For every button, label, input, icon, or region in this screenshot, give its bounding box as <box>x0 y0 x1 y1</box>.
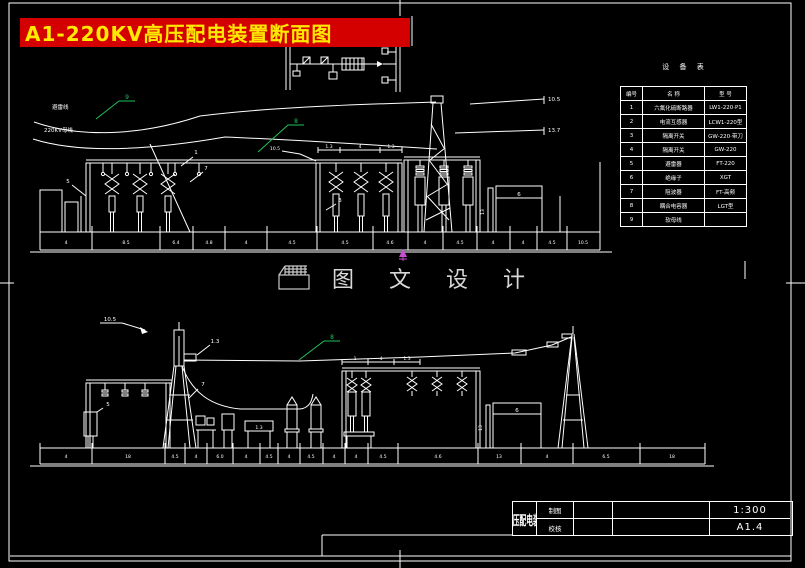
dim: 4 <box>245 454 248 460</box>
device-callout: 1.3 <box>211 339 220 345</box>
insulator-strings-left <box>105 163 175 232</box>
table-row: 5避雷器FT-220 <box>621 157 747 171</box>
beam-dim: 1.3 <box>403 356 410 362</box>
dim: 4.5 <box>341 240 348 246</box>
callout-3: 3 <box>338 198 342 204</box>
beam-callout: 10.5 <box>270 146 280 152</box>
callout-1: 1 <box>194 150 198 156</box>
bottom-dimension-band: 4 18 4.5 4 6.0 4 4.5 4 4.5 4 4 4.5 4.6 1… <box>30 443 714 466</box>
label-220kv-bus: 220KV母线 <box>44 126 73 134</box>
cell-name: 避雷器 <box>643 157 705 171</box>
dim: 4.5 <box>548 240 555 246</box>
dim: 4 <box>424 240 427 246</box>
scale-value: 1:300 <box>710 502 790 519</box>
beam-dim: 1.3 <box>387 144 394 150</box>
breaker-gantry <box>404 157 480 232</box>
cell-name: 绝缘子 <box>643 171 705 185</box>
pin-insulators <box>101 163 200 176</box>
cell-name: 六氟化硫断路器 <box>643 101 705 115</box>
cell-no: 9 <box>621 213 643 227</box>
left-portal <box>86 380 172 448</box>
table-row: 3隔离开关GW-220·带刀 <box>621 129 747 143</box>
elevation-callout: 10.5 <box>548 97 561 103</box>
title-block: 制图 220KV高压配电装置断面图 1:300 校核 A1.4 <box>512 501 793 536</box>
callout-5: 5 <box>106 402 110 408</box>
callout-7: 7 <box>204 166 208 172</box>
dim: 18 <box>669 454 675 460</box>
dim: 4.5 <box>379 454 386 460</box>
cell-no: 2 <box>621 115 643 129</box>
beam-dim: 4 <box>380 356 383 362</box>
beam-dim: 1.3 <box>325 144 332 150</box>
height-label: 13 <box>478 425 484 431</box>
cell-model: XGT <box>705 171 747 185</box>
cursor-marker <box>399 249 407 261</box>
height-label: 13 <box>480 209 486 215</box>
drawing-title-banner: A1-220KV高压配电装置断面图 <box>20 18 410 47</box>
equipment-table: 编号 名 称 型 号 1六氟化硫断路器LW1-220·P1 2电流互感器LCW1… <box>620 86 747 227</box>
table-row: 8耦合电容器LGT型 <box>621 199 747 213</box>
single-line-schematic <box>286 44 400 92</box>
checker-value <box>574 519 613 536</box>
dim: 6.0 <box>216 454 223 460</box>
building-label: 6 <box>517 192 521 198</box>
mast-callout: 10.5 <box>104 317 117 323</box>
top-dimension-band: 4 8.5 6.4 4.8 4 4.5 4.5 4.6 4 4.5 4 4 4.… <box>30 226 612 252</box>
a-frame-mast <box>558 326 588 448</box>
dim: 4 <box>245 240 248 246</box>
green-callout-9: 9 <box>125 94 129 101</box>
cell-no: 1 <box>621 101 643 115</box>
col-header-no: 编号 <box>621 87 643 101</box>
table-row: 2电流互感器LCW1-220型 <box>621 115 747 129</box>
table-row: 7阻波器FT-高频 <box>621 185 747 199</box>
dim: 4.6 <box>434 454 441 460</box>
dim: 8.5 <box>122 240 129 246</box>
cad-viewport: { "colors": { "background": "#000000", "… <box>0 0 805 568</box>
maker-extra <box>613 502 710 519</box>
cell-no: 8 <box>621 199 643 213</box>
cell-model: FT-220 <box>705 157 747 171</box>
green-callout-8: 8 <box>330 334 334 341</box>
dim: 4.5 <box>456 240 463 246</box>
lattice-tower <box>424 96 452 232</box>
dim: 4.5 <box>265 454 272 460</box>
dim: 4 <box>333 454 336 460</box>
col-header-name: 名 称 <box>643 87 705 101</box>
cell-model: FT-高频 <box>705 185 747 199</box>
beam-dim: 1 <box>354 356 357 362</box>
cell-name: 耦合电容器 <box>643 199 705 213</box>
maker-label: 制图 <box>537 502 574 519</box>
cell-model: GW-220·带刀 <box>705 129 747 143</box>
cell-no: 6 <box>621 171 643 185</box>
table-row: 4隔离开关GW-220 <box>621 143 747 157</box>
equipment-table-caption: 设 备 表 <box>638 62 732 72</box>
cell-name: 隔离开关 <box>643 129 705 143</box>
callout-7: 7 <box>201 382 205 388</box>
label-lightning-wire: 避雷线 <box>52 103 69 111</box>
dim: 4 <box>65 454 68 460</box>
dim: 6.5 <box>602 454 609 460</box>
watermark-text: 图 文 设 计 <box>332 262 539 294</box>
dim: 4 <box>195 454 198 460</box>
cell-no: 3 <box>621 129 643 143</box>
building-label: 6 <box>515 408 519 414</box>
drawing-title-text: A1-220KV高压配电装置断面图 <box>25 18 332 47</box>
dim: 4 <box>65 240 68 246</box>
checker-extra <box>613 519 710 536</box>
cell-model: GW-220 <box>705 143 747 157</box>
dim: 6.4 <box>172 240 179 246</box>
dim: 4.5 <box>307 454 314 460</box>
green-callout-8: 8 <box>294 118 298 125</box>
cell-no: 4 <box>621 143 643 157</box>
cell-no: 5 <box>621 157 643 171</box>
table-row: 1六氟化硫断路器LW1-220·P1 <box>621 101 747 115</box>
dim: 4.5 <box>288 240 295 246</box>
cell-model: LGT型 <box>705 199 747 213</box>
dim: 4 <box>546 454 549 460</box>
beam-dim: 4 <box>359 144 362 150</box>
cell-model: LCW1-220型 <box>705 115 747 129</box>
bottom-section-view: 10.5 1.3 8 <box>30 317 714 466</box>
lightning-mast <box>163 322 196 448</box>
table-row: 6绝缘子XGT <box>621 171 747 185</box>
col-header-model: 型 号 <box>705 87 747 101</box>
dim: 10.5 <box>578 240 588 246</box>
cell-name: 软母线 <box>643 213 705 227</box>
cell-name: 阻波器 <box>643 185 705 199</box>
dim: 4 <box>492 240 495 246</box>
dim: 4 <box>288 454 291 460</box>
table-row: 9软母线 <box>621 213 747 227</box>
watermark-logo-icon <box>276 263 314 293</box>
cell-no: 7 <box>621 185 643 199</box>
watermark: 图 文 设 计 <box>276 262 539 294</box>
dim: 13 <box>496 454 502 460</box>
cell-model <box>705 213 747 227</box>
sheet-number: A1.4 <box>710 519 790 536</box>
dim: 4.5 <box>171 454 178 460</box>
cell-name: 电流互感器 <box>643 115 705 129</box>
bench-label: 1.3 <box>255 425 262 431</box>
elevation-callout: 13.7 <box>548 128 561 134</box>
cell-name: 隔离开关 <box>643 143 705 157</box>
top-section-view: 避雷线 220KV母线 9 8 <box>30 94 612 252</box>
dim: 4.6 <box>386 240 393 246</box>
callout-5: 5 <box>66 179 70 185</box>
titleblock-drawing-title: 220KV高压配电装置断面图 <box>513 502 537 536</box>
dim: 4 <box>355 454 358 460</box>
cell-model: LW1-220·P1 <box>705 101 747 115</box>
right-portal: 1 4 1.3 <box>342 356 480 448</box>
dim: 4 <box>522 240 525 246</box>
dim: 4.8 <box>205 240 212 246</box>
maker-value <box>574 502 613 519</box>
dim: 18 <box>125 454 131 460</box>
checker-label: 校核 <box>537 519 574 536</box>
